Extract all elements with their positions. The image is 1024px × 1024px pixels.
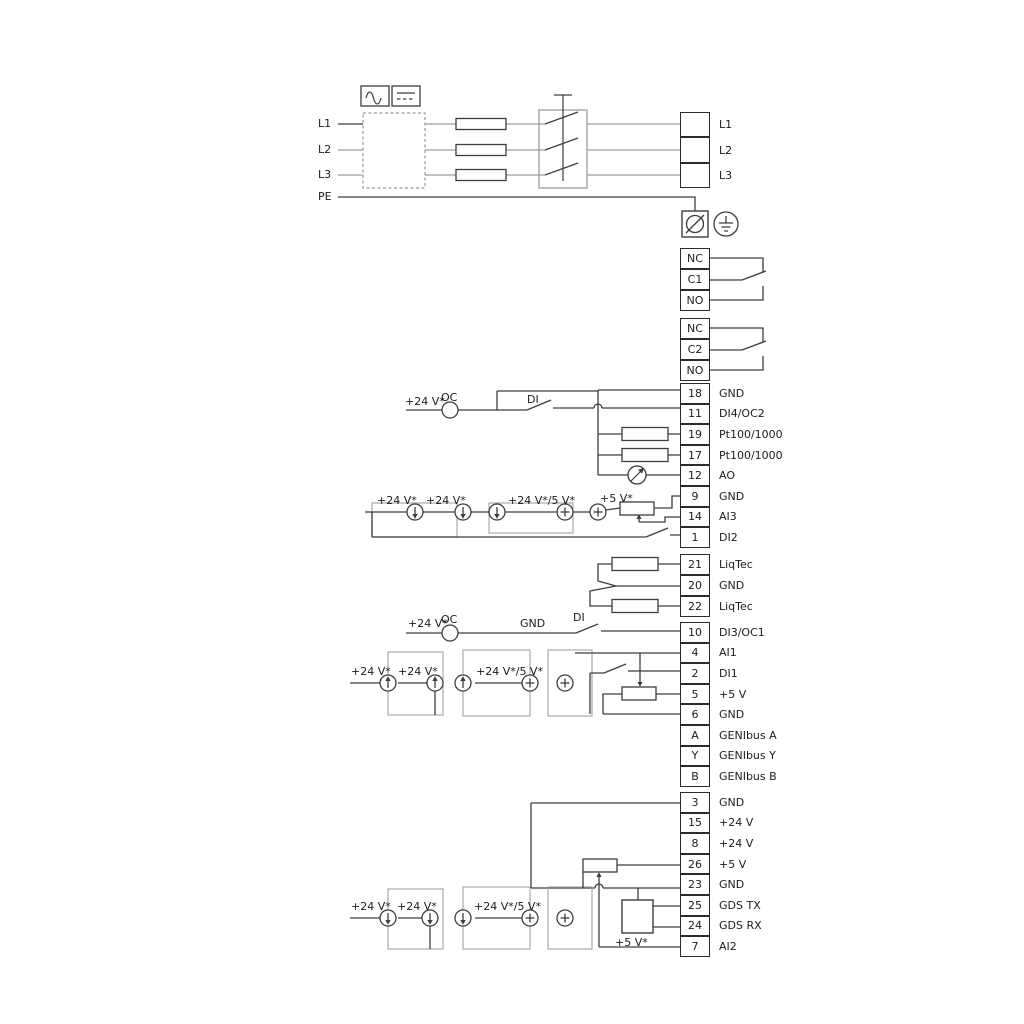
- terminal-cell: 23: [680, 874, 710, 895]
- di-label: DI: [573, 611, 585, 624]
- supply-voltage-label: +5 V*: [615, 936, 648, 949]
- terminal-cell: 7: [680, 936, 710, 957]
- rcd-dc-symbol-icon: [392, 86, 420, 106]
- terminal-label: AI2: [719, 940, 737, 953]
- terminal-cell: 17: [680, 445, 710, 466]
- phase-l1-label: L1: [318, 117, 331, 130]
- terminal-label: L3: [719, 169, 732, 182]
- terminal-cell: [680, 112, 710, 137]
- terminal-label: +24 V: [719, 837, 753, 850]
- ai1-sensor-wires: [350, 653, 680, 715]
- supply-voltage-label: +24 V*: [377, 494, 417, 507]
- terminal-label: LiqTec: [719, 558, 753, 571]
- terminal-cell: C1: [680, 269, 710, 290]
- terminal-cell: A: [680, 725, 710, 746]
- terminal-cell: 24: [680, 916, 710, 937]
- terminal-cell: 10: [680, 622, 710, 643]
- main-switch-icon: [539, 95, 587, 188]
- terminal-label: AI1: [719, 646, 737, 659]
- phase-l2-label: L2: [318, 143, 331, 156]
- terminal-label: DI4/OC2: [719, 407, 765, 420]
- terminal-label: GDS TX: [719, 899, 761, 912]
- terminal-label: GND: [719, 579, 744, 592]
- ai3-sensor-brackets: [372, 503, 573, 537]
- terminal-label: Pt100/1000: [719, 449, 783, 462]
- supply-voltage-label: +24 V*: [397, 900, 437, 913]
- terminal-label: GENIbus A: [719, 729, 777, 742]
- terminal-label: GND: [719, 708, 744, 721]
- terminal-label: GND: [719, 878, 744, 891]
- terminal-label: GND: [719, 387, 744, 400]
- terminal-label: L1: [719, 118, 732, 131]
- current-source-icon: [455, 675, 471, 691]
- terminal-cell: 12: [680, 465, 710, 486]
- terminal-cell: 22: [680, 596, 710, 617]
- terminal-label: GND: [719, 796, 744, 809]
- relay1-contact: [710, 258, 766, 300]
- relay2-contact: [710, 328, 766, 370]
- voltage-source-icon: [590, 504, 606, 520]
- terminal-cell: NC: [680, 318, 710, 339]
- terminal-label: +5 V: [719, 688, 746, 701]
- fuse-icon: [456, 119, 506, 181]
- terminal-label: GENIbus Y: [719, 749, 776, 762]
- phase-wires: [338, 124, 680, 175]
- terminal-cell: 15: [680, 813, 710, 834]
- terminal-cell: 20: [680, 575, 710, 596]
- terminal-label: L2: [719, 144, 732, 157]
- terminal-cell: 5: [680, 684, 710, 705]
- current-source-icon: [489, 504, 505, 520]
- lower-pot-wiper-arrow: [596, 872, 601, 877]
- supply-voltage-label: +24 V*: [351, 900, 391, 913]
- terminal-cell: NC: [680, 248, 710, 269]
- terminal-cell: [680, 163, 710, 188]
- supply-voltage-label: +24 V*: [405, 395, 445, 408]
- terminal-cell: 4: [680, 643, 710, 664]
- wiring-diagram-lines: [0, 0, 1024, 1024]
- supply-voltage-label: +24 V*: [351, 665, 391, 678]
- terminal-cell: B: [680, 766, 710, 787]
- terminal-label: +5 V: [719, 858, 746, 871]
- terminal-cell: 19: [680, 424, 710, 445]
- voltage-source-icon: [557, 675, 573, 691]
- supply-voltage-label: +5 V*: [600, 492, 633, 505]
- terminal-cell: NO: [680, 290, 710, 311]
- terminal-label: +24 V: [719, 816, 753, 829]
- wiring-diagram: L1 L2 L3 PE L1 L2 L3 NC C1 NO NC C2 NO 1…: [0, 0, 1024, 1024]
- gds-sensor-box: [622, 900, 653, 933]
- liqtec-sensor-icon: [590, 558, 680, 613]
- terminal-cell: 9: [680, 486, 710, 507]
- supply-voltage-label: +24 V*/5 V*: [508, 494, 575, 507]
- earth-ground-icon: [714, 212, 738, 236]
- oc-label: OC: [441, 391, 457, 404]
- oc-label: OC: [441, 613, 457, 626]
- terminal-label: GND: [719, 490, 744, 503]
- terminal-cell: 8: [680, 833, 710, 854]
- terminal-label: Pt100/1000: [719, 428, 783, 441]
- terminal-label: GENIbus B: [719, 770, 777, 783]
- current-source-icon: [455, 910, 471, 926]
- terminal-cell: 14: [680, 507, 710, 528]
- supply-voltage-label: +24 V*: [398, 665, 438, 678]
- emc-filter-box: [363, 113, 425, 188]
- terminal-cell: NO: [680, 360, 710, 381]
- lower-gnd-wires: [531, 803, 680, 888]
- ai1-pot-wiper-arrow: [637, 682, 642, 687]
- terminal-cell: 3: [680, 792, 710, 813]
- di-label: DI: [527, 393, 539, 406]
- terminal-cell: 6: [680, 704, 710, 725]
- terminal-cell: 18: [680, 383, 710, 404]
- terminal-label: DI3/OC1: [719, 626, 765, 639]
- supply-voltage-label: +24 V*/5 V*: [474, 900, 541, 913]
- supply-voltage-label: +24 V*: [426, 494, 466, 507]
- pe-label: PE: [318, 190, 332, 203]
- terminal-cell: 1: [680, 527, 710, 548]
- terminal-cell: 2: [680, 663, 710, 684]
- terminal-label: AO: [719, 469, 735, 482]
- terminal-cell: [680, 137, 710, 162]
- phase-l3-label: L3: [318, 168, 331, 181]
- lower-potentiometer-icon: [583, 859, 617, 872]
- terminal-cell: C2: [680, 339, 710, 360]
- terminal-cell: Y: [680, 746, 710, 767]
- rcd-ac-symbol-icon: [361, 86, 389, 106]
- terminal-label: GDS RX: [719, 919, 762, 932]
- terminal-cell: 25: [680, 895, 710, 916]
- terminal-cell: 26: [680, 854, 710, 875]
- terminal-cell: 11: [680, 404, 710, 425]
- supply-voltage-label: +24 V*/5 V*: [476, 665, 543, 678]
- voltage-source-icon: [557, 910, 573, 926]
- terminal-label: LiqTec: [719, 600, 753, 613]
- terminal-cell: 21: [680, 554, 710, 575]
- pe-wire: [338, 197, 695, 211]
- terminal-label: DI2: [719, 531, 738, 544]
- pt100-sensor-icon: [598, 428, 680, 462]
- ai1-potentiometer-icon: [622, 687, 656, 700]
- gnd-label: GND: [520, 617, 545, 630]
- terminal-label: DI1: [719, 667, 738, 680]
- pe-terminal-icon: [682, 211, 708, 237]
- terminal-label: AI3: [719, 510, 737, 523]
- ao-meter-icon: [598, 466, 680, 484]
